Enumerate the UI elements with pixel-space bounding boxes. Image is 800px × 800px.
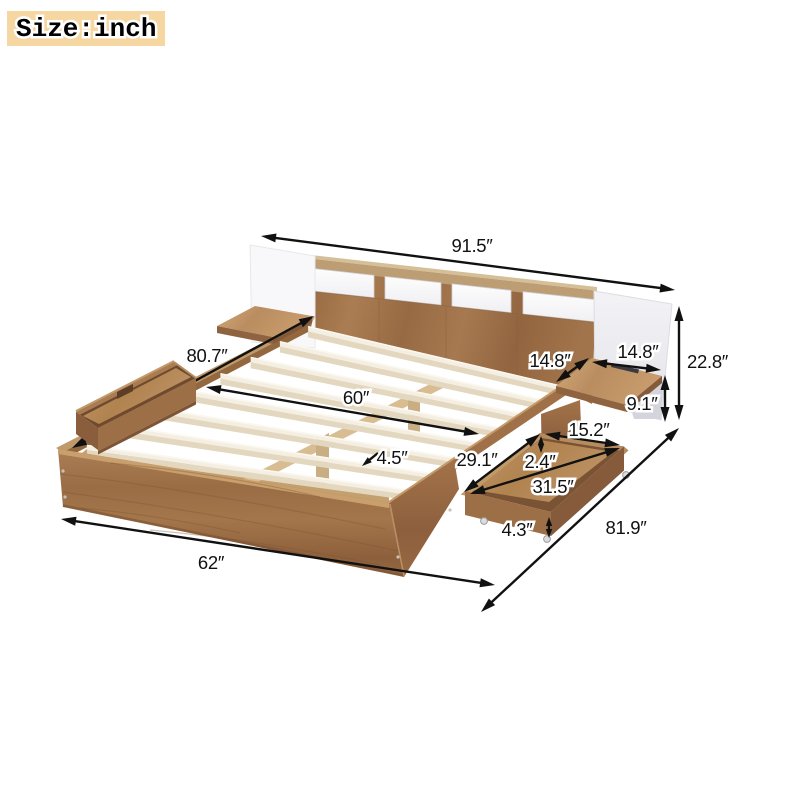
svg-text:80.7″: 80.7″: [186, 345, 228, 366]
svg-text:29.1″: 29.1″: [456, 449, 498, 470]
svg-text:91.5″: 91.5″: [451, 235, 493, 256]
svg-text:Size:inch: Size:inch: [16, 14, 156, 44]
svg-text:22.8″: 22.8″: [687, 351, 729, 372]
svg-text:60″: 60″: [343, 387, 370, 408]
svg-text:4.3″: 4.3″: [501, 519, 533, 540]
svg-text:14.8″: 14.8″: [529, 350, 571, 371]
svg-text:15.2″: 15.2″: [568, 419, 610, 440]
svg-text:81.9″: 81.9″: [605, 517, 647, 538]
svg-text:62″: 62″: [198, 552, 225, 573]
svg-text:14.8″: 14.8″: [617, 341, 659, 362]
svg-text:4.5″: 4.5″: [376, 447, 408, 468]
svg-text:31.5″: 31.5″: [532, 476, 574, 497]
svg-text:9.1″: 9.1″: [626, 393, 658, 414]
